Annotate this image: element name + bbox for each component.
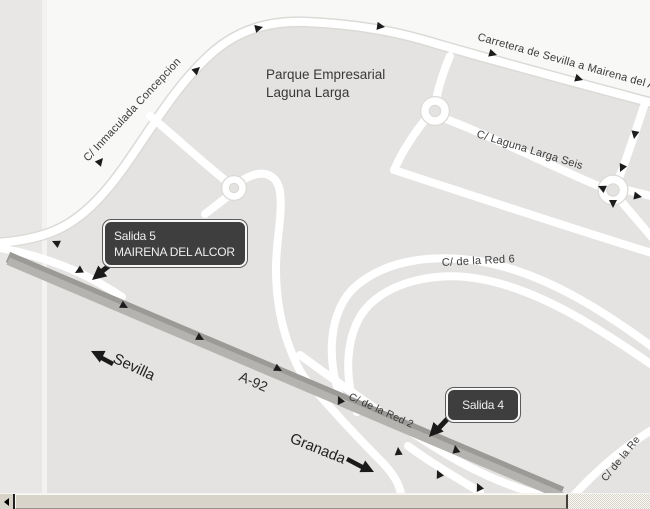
street-map: C/ Inmaculada Concepcion Carretera de Se… xyxy=(0,0,650,493)
scrollbar-left-button[interactable] xyxy=(0,494,15,509)
label-parque-line1: Parque Empresarial xyxy=(266,67,385,82)
map-viewer-window: C/ Inmaculada Concepcion Carretera de Se… xyxy=(0,0,650,509)
scrollbar-track[interactable] xyxy=(568,494,650,509)
salida5-badge-line1: Salida 5 xyxy=(114,228,239,244)
left-strip-edge xyxy=(42,0,47,493)
map-canvas[interactable]: C/ Inmaculada Concepcion Carretera de Se… xyxy=(0,0,650,493)
scroll-left-icon xyxy=(4,498,9,506)
scrollbar-thumb[interactable] xyxy=(15,494,568,509)
horizontal-scrollbar[interactable] xyxy=(0,493,650,509)
label-parque-line2: Laguna Larga xyxy=(266,85,350,100)
salida4-badge: Salida 4 xyxy=(446,388,520,422)
salida4-badge-label: Salida 4 xyxy=(462,398,504,412)
salida5-badge-line2: MAIRENA DEL ALCOR xyxy=(114,244,239,260)
salida5-badge: Salida 5 MAIRENA DEL ALCOR xyxy=(103,220,247,267)
